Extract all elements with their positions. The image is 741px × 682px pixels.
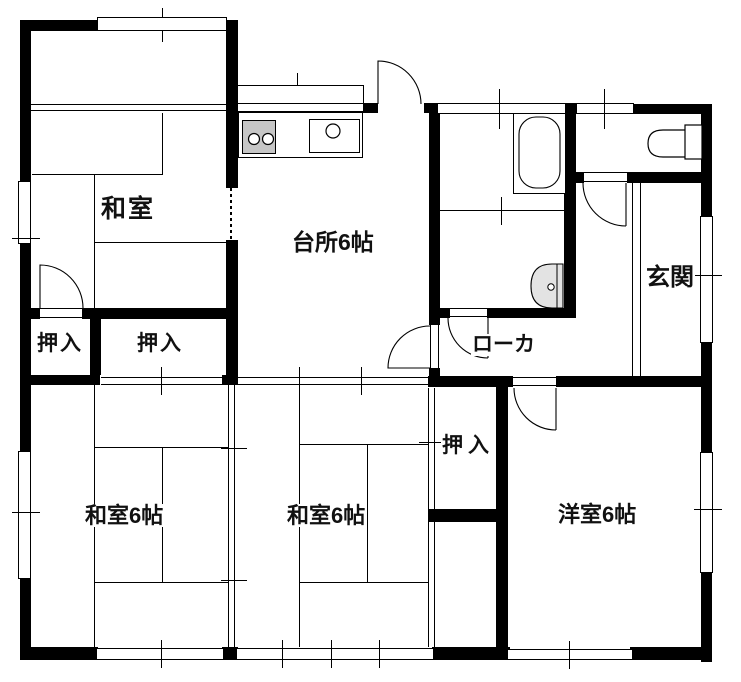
door-swing-washitsu-top xyxy=(40,265,83,308)
window-bottom-right xyxy=(507,649,633,660)
window-tick xyxy=(379,640,380,668)
window-tick xyxy=(694,275,722,276)
gas-stove xyxy=(242,120,276,154)
window-genkan xyxy=(700,216,713,343)
wall-youshitsu-west xyxy=(496,387,508,647)
room-label-oshiire-left: 押入 xyxy=(36,333,84,355)
door-opening xyxy=(450,316,487,317)
window-tick xyxy=(161,640,162,668)
window-youshitsu-east xyxy=(700,452,713,573)
window-bottom-left xyxy=(96,648,224,660)
window-kitchen xyxy=(237,85,364,112)
wall-left xyxy=(20,243,31,452)
sliding-door xyxy=(238,384,428,385)
sliding-door xyxy=(234,385,235,647)
window xyxy=(97,17,227,31)
wall-top xyxy=(20,20,100,31)
room-label-washitsu-top: 和室 xyxy=(100,196,156,222)
sliding-door xyxy=(434,388,435,647)
window-tick xyxy=(569,641,570,669)
toilet-tank xyxy=(685,125,702,159)
wall-closet-bottom xyxy=(20,375,100,385)
engawa-line xyxy=(31,110,227,111)
tatami-line xyxy=(162,113,163,175)
room-label-kitchen: 台所6帖 xyxy=(291,230,375,254)
wall-washitsu-south xyxy=(82,308,238,319)
wall-washroom-south xyxy=(429,308,450,318)
window-line xyxy=(238,103,363,104)
door-opening xyxy=(584,172,627,173)
sliding-door xyxy=(238,377,428,378)
room-label-washitsu-bottom-left: 和室6帖 xyxy=(84,504,164,527)
floor-plan: 和室 台所6帖 押入 押入 押入 和室6帖 和室6帖 洋室6帖 玄関 ローカ xyxy=(0,0,741,682)
opening-tick xyxy=(221,448,247,449)
tatami-line xyxy=(367,445,368,583)
door-opening xyxy=(438,325,439,368)
wall-washitsu-south xyxy=(20,308,40,319)
opening-tick xyxy=(221,580,247,581)
door-swing-toilet xyxy=(583,183,626,226)
wall-right xyxy=(701,342,712,453)
room-label-oshiire-middle: 押入 xyxy=(441,435,495,457)
wall-bottom xyxy=(630,647,712,660)
opening-tick xyxy=(361,367,362,395)
washbasin xyxy=(531,264,563,308)
tatami-line xyxy=(300,444,429,445)
door-opening xyxy=(40,308,82,309)
wall-left xyxy=(20,20,31,182)
door-opening xyxy=(40,317,82,318)
sliding-door xyxy=(228,385,229,647)
engawa-line xyxy=(31,104,227,105)
washbasin-drain-icon xyxy=(548,284,554,290)
opening-tick xyxy=(501,197,502,225)
wall-closet-divider xyxy=(90,318,101,375)
window-tick xyxy=(331,640,332,668)
tatami-line xyxy=(300,582,429,583)
genkan-step xyxy=(632,183,633,377)
door-opening xyxy=(513,385,556,386)
wall-post xyxy=(222,375,238,385)
room-label-genkan: 玄関 xyxy=(645,265,695,290)
bathtub-surround xyxy=(513,112,566,194)
window-left-top xyxy=(18,181,31,244)
tatami-line xyxy=(32,174,163,175)
wall-toilet-south xyxy=(564,172,584,183)
window-tick xyxy=(282,640,283,668)
genkan-step xyxy=(640,183,641,377)
door-swing-kitchen-north xyxy=(378,61,421,104)
door-opening xyxy=(584,181,627,182)
room-label-corridor: ローカ xyxy=(471,334,536,356)
wall-toilet-south xyxy=(627,172,712,183)
window-bathroom xyxy=(437,103,566,114)
room-label-youshitsu: 洋室6帖 xyxy=(557,503,637,526)
opening-tick xyxy=(161,367,162,395)
window-bottom-center xyxy=(236,648,434,660)
wall-right xyxy=(701,104,712,217)
tatami-line xyxy=(95,242,226,243)
wall-bottom xyxy=(20,647,98,660)
window-left-bottom xyxy=(18,451,31,579)
door-swing-youshitsu xyxy=(514,388,556,430)
window-tick xyxy=(604,89,605,129)
room-label-oshiire-center: 押入 xyxy=(136,333,184,355)
door-opening xyxy=(430,325,431,368)
wall-kitchen-north xyxy=(363,103,378,113)
toilet xyxy=(648,130,686,157)
wall-washroom-south xyxy=(487,308,576,318)
door-opening xyxy=(450,308,487,309)
sliding-door xyxy=(428,388,429,647)
window-tick xyxy=(499,89,500,129)
window-tick xyxy=(694,509,722,510)
wall-top-right-section xyxy=(632,104,712,114)
wall-corridor-south xyxy=(556,376,712,387)
window-toilet xyxy=(576,103,634,114)
door-swing-kitchen-corridor xyxy=(388,326,430,368)
wall-bottom xyxy=(432,647,510,660)
wall-corridor-south xyxy=(428,376,513,387)
room-label-washitsu-bottom-center: 和室6帖 xyxy=(286,504,366,527)
wall-washroom-west xyxy=(429,112,440,325)
door-opening xyxy=(513,377,556,378)
kitchen-sink xyxy=(309,119,360,153)
window-tick xyxy=(12,238,40,239)
window-tick xyxy=(12,512,40,513)
